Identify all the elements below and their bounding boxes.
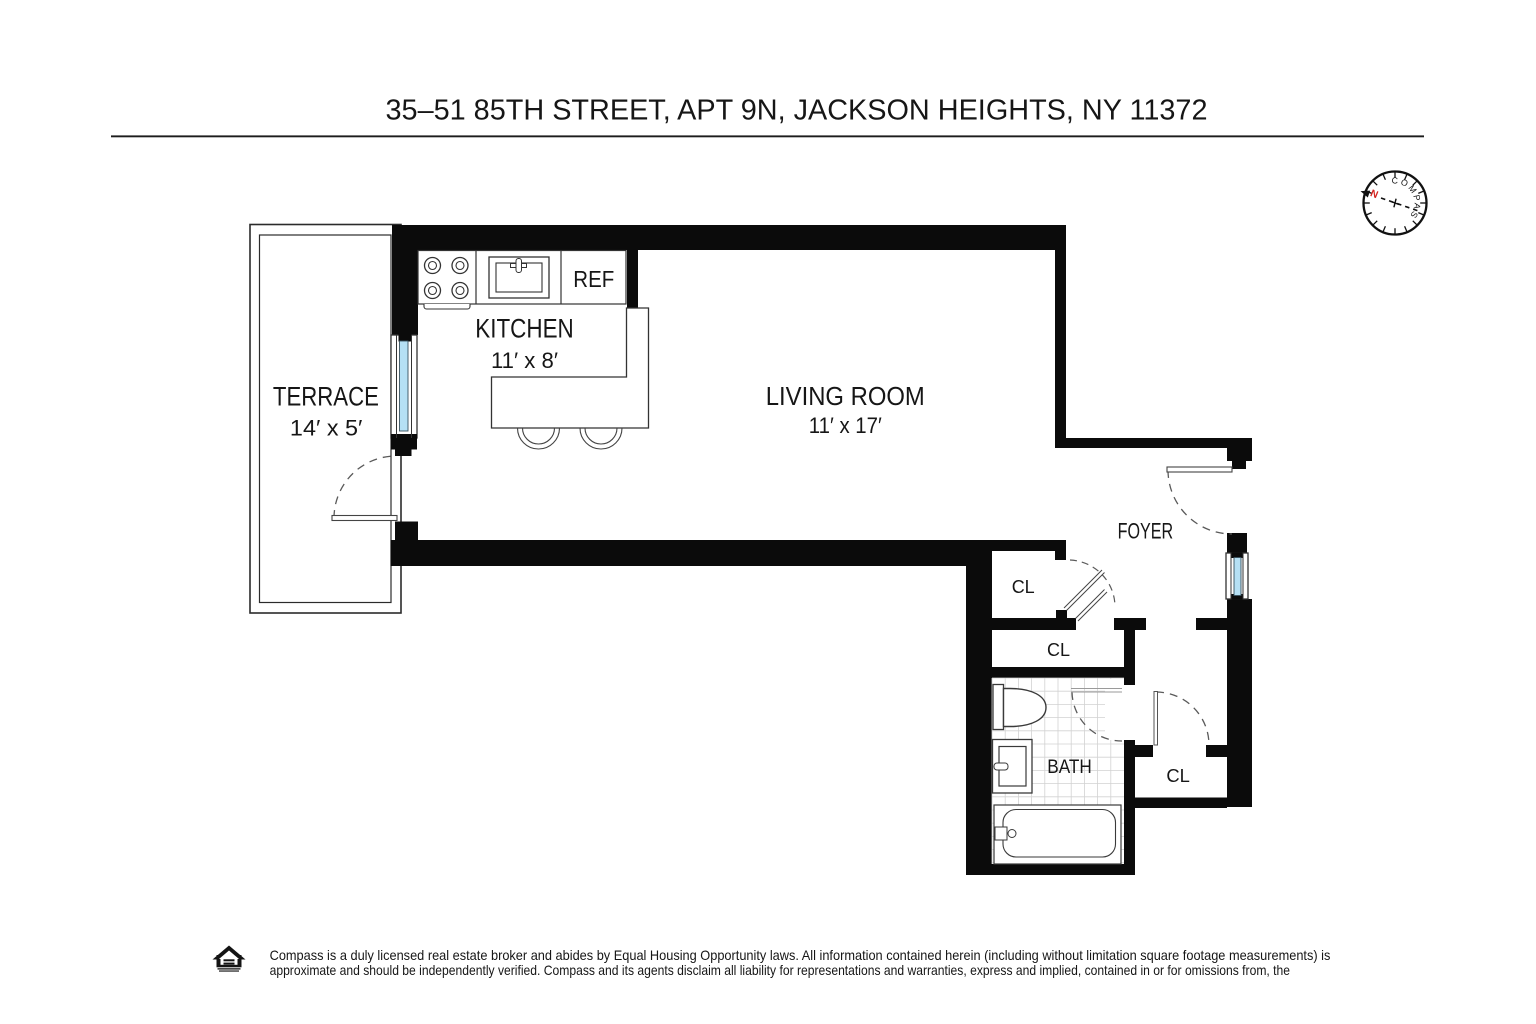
svg-text:14′ x 5′: 14′ x 5′	[290, 416, 363, 441]
svg-text:CL: CL	[1166, 766, 1190, 786]
svg-text:11′ x 8′: 11′ x 8′	[491, 348, 558, 373]
svg-text:CL: CL	[1012, 577, 1035, 597]
svg-text:11′ x 17′: 11′ x 17′	[809, 413, 882, 438]
svg-text:approximate and should be inde: approximate and should be independently …	[270, 962, 1291, 978]
svg-text:N: N	[1369, 188, 1380, 201]
svg-text:CL: CL	[1047, 640, 1070, 660]
svg-text:REF: REF	[573, 266, 614, 292]
svg-text:LIVING ROOM: LIVING ROOM	[766, 383, 925, 411]
svg-text:35–51 85TH STREET, APT 9N, JAC: 35–51 85TH STREET, APT 9N, JACKSON HEIGH…	[386, 94, 1208, 126]
svg-text:BATH: BATH	[1047, 757, 1092, 778]
svg-text:FOYER: FOYER	[1118, 519, 1174, 544]
svg-text:KITCHEN: KITCHEN	[475, 313, 574, 343]
svg-text:TERRACE: TERRACE	[273, 382, 379, 412]
svg-text:Compass is a duly licensed rea: Compass is a duly licensed real estate b…	[270, 947, 1331, 963]
